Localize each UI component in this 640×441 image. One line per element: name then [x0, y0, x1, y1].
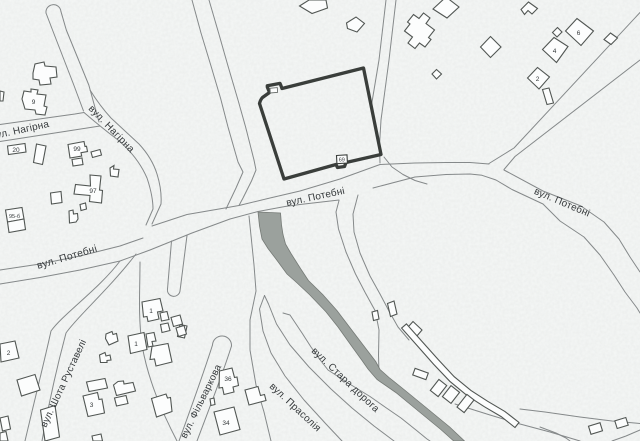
- svg-text:2: 2: [536, 76, 540, 83]
- svg-text:69: 69: [339, 158, 345, 164]
- svg-text:2: 2: [7, 350, 11, 357]
- svg-text:3: 3: [90, 402, 94, 409]
- svg-text:36: 36: [224, 376, 232, 383]
- svg-text:34: 34: [222, 420, 230, 427]
- svg-text:6: 6: [577, 30, 581, 37]
- svg-text:99: 99: [73, 146, 81, 153]
- svg-text:1: 1: [149, 308, 153, 315]
- svg-text:4: 4: [553, 48, 557, 55]
- svg-text:9: 9: [32, 99, 36, 106]
- svg-text:20: 20: [12, 147, 20, 154]
- svg-text:97: 97: [89, 188, 97, 195]
- svg-text:95-б: 95-б: [9, 214, 20, 220]
- svg-text:1: 1: [134, 341, 138, 348]
